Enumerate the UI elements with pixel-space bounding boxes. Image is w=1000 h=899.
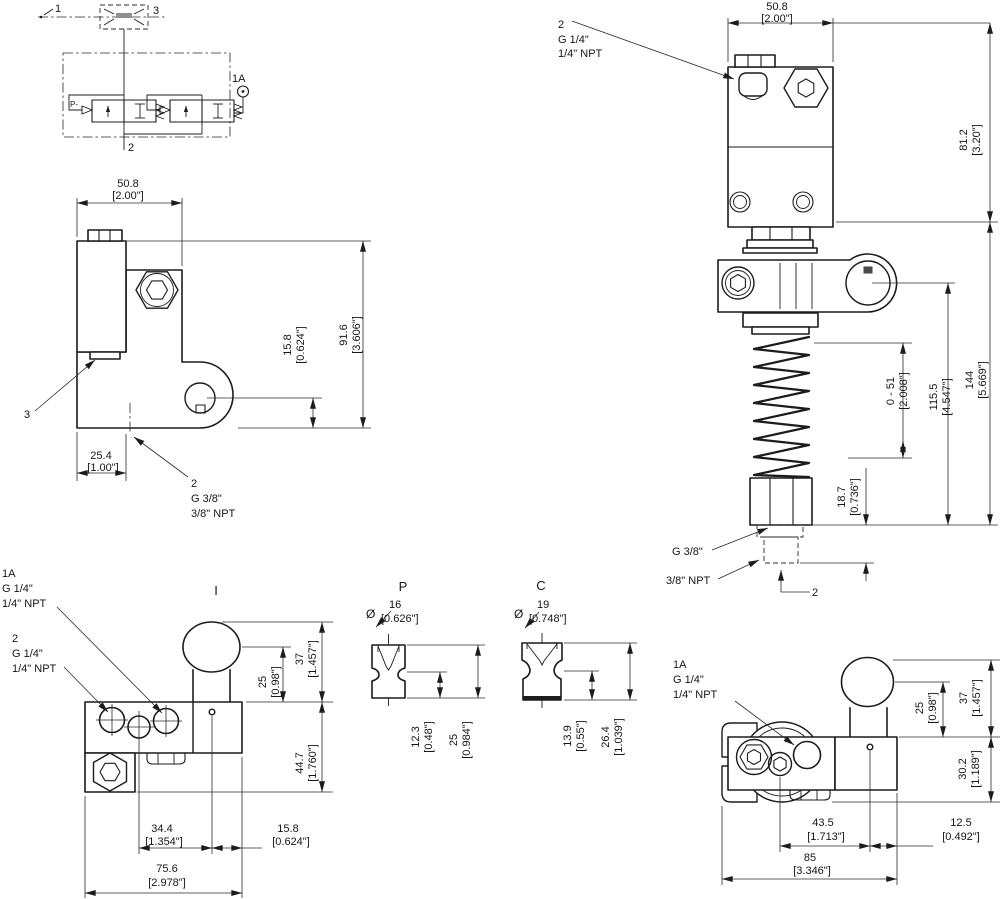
callout-text: 1/4" NPT [558,48,603,60]
dim-text: 50.8 [117,178,138,190]
callout-text: G 1/4" [673,674,704,686]
schematic-valve-left: P- [69,95,164,122]
dim-text: 37 [294,653,306,665]
dim-text: [0.492"] [942,831,980,843]
lever-bracket [835,737,897,790]
dia-callout: Ø 19 [0.748"] [514,599,567,628]
dim-text: [0.736"] [849,478,861,516]
dim-text: [2.00"] [112,190,143,202]
callout-port-2: 2 G 1/4" 1/4" NPT [558,19,734,79]
schematic-item-2: 2 [128,142,134,154]
side-port-block [85,753,135,792]
spring-symbol [234,104,242,119]
callout-port-1a: 1A G 1/4" 1/4" NPT [2,568,162,713]
dim-body-height: 81.2 [3.20"] [836,23,998,222]
dim-text: [2.008"] [898,372,910,410]
dim-total-height: 144 [5.669"] [964,222,990,525]
dim-pin-edge: 15.8 [0.624"] [212,757,310,898]
spring-seat [743,313,818,327]
dim-text: 15.8 [277,823,298,835]
dim-text: 144 [964,371,976,389]
detail-c: C Ø 19 [0.748"] 13.9 [0.55"] 26.4 [1.039… [514,578,637,756]
thread-stub-g [757,525,803,537]
dim-text: 85 [804,852,816,864]
dim-text: 30.2 [957,758,969,779]
dim-text: [0.624"] [272,836,310,848]
callout-text: G 3/8" [672,546,703,558]
seal-face [524,696,561,700]
dim-text: [5.669"] [977,361,989,399]
valve-drawing-canvas: 1 3 P- [0,0,1000,899]
dim-side-base: 25.4 [1.00"] [77,432,126,481]
diameter-symbol: Ø [514,607,523,621]
callout-text: G 1/4" [12,648,43,660]
dim-pin-edge: 12.5 [0.492"] [870,793,980,885]
dim-text: [1.760"] [307,744,319,782]
lever-knob [842,658,894,707]
dim-front-width: 50.8 [2.00"] [728,1,990,62]
callout-text: 3 [24,409,30,421]
valve-cartridge [77,241,126,352]
balloon-dot [40,16,43,19]
detail-p: P Ø 16 [0.626"] 12.3 [0.48"] 25 [0.984"] [366,579,485,759]
callout-text: 3/8" NPT [666,575,711,587]
dim-text: 25 [448,734,460,746]
dim-text: [3.606"] [351,316,363,354]
stem-flange [747,240,813,248]
pivot-keyway [864,267,873,274]
dia-callout: Ø 16 [0.626"] [366,599,419,627]
dim-text: 50.8 [766,1,787,13]
dim-text: 75.6 [156,863,177,875]
dim-text: 81.2 [958,129,970,150]
dim-text: [1.00"] [87,462,118,474]
dim-text: [3.20"] [971,124,983,155]
dim-text: [0.48"] [423,721,435,752]
dim-text: [1.354"] [145,836,183,848]
dim-text: 18.7 [836,486,848,507]
dim-text: 37 [958,692,970,704]
side-view: 50.8 [2.00"] 91.6 [3.606"] 15.8 [0.624"]… [24,178,371,520]
top-nut [88,230,122,241]
dim-text: [4.547"] [941,378,953,416]
callout-text: 1/4" NPT [2,598,47,610]
view-title: P [399,579,408,594]
side-view-2: 25 [0.98"] 37 [1.457"] 30.2 [1.189"] 43.… [673,658,1000,886]
dim-text: [0.624"] [295,326,307,364]
stem-nut [752,227,810,240]
dim-text: 91.6 [338,324,350,345]
dim-text: 34.4 [151,823,172,835]
dim-text: 43.5 [812,817,833,829]
dim-text: [0.55"] [575,720,587,751]
thread-stub-npt [764,537,798,563]
dim-text: [1.457"] [971,679,983,717]
lever-knob [183,622,240,672]
schematic-item-3: 3 [153,5,159,17]
dim-text: [0.984"] [461,721,473,759]
callout-port-2: 2 G 3/8" 3/8" NPT [134,437,236,520]
front-view: 50.8 [2.00"] 2 G 1/4" 1/4" NPT 81.2 [3.2… [558,1,998,599]
dim-text: [0.748"] [529,613,567,625]
callout-text: 2 [12,633,18,645]
dim-text: 15.8 [282,334,294,355]
dim-text: [1.039"] [613,718,625,756]
dim-text: 115.5 [928,384,940,411]
dim-text: 0 - 51 [885,377,897,405]
hydraulic-schematic: 1 3 P- [38,3,249,154]
dim-text: 25 [257,676,269,688]
dim-text: [2.00"] [761,13,792,25]
pilot-arrow [160,106,170,114]
dim-p-waist: 12.3 [0.48"] [407,672,447,753]
schematic-item-1: 1 [55,3,61,15]
callout-text: 1/4" NPT [673,689,718,701]
breather-bar [116,13,132,18]
dim-knob-center: 25 [0.98"] [895,682,950,737]
plunger-p [372,645,405,698]
dim-text: 16 [389,599,401,611]
valve-body-top [85,702,242,753]
cartridge-step [90,352,120,359]
dim-text: [0.98"] [927,692,939,723]
pilot-arrow [82,106,92,114]
callout-text: 2 [812,587,818,599]
dim-text: 25 [914,702,926,714]
engineering-drawing-sheet: 1 3 P- [0,0,1000,899]
callout-text: 1A [673,659,687,671]
callout-text: G 1/4" [558,34,589,46]
dim-text: 12.3 [410,726,422,747]
diameter-symbol: Ø [366,607,375,621]
plunger-c [522,643,562,700]
dim-text: 26.4 [600,726,612,747]
coil-spring [754,337,809,477]
dim-text: [3.346"] [793,865,831,877]
callout-text: G 3/8" [191,493,222,505]
top-nut [735,55,775,67]
callout-text: 1A [2,568,16,580]
dim-text: 12.5 [950,817,971,829]
dim-text: 44.7 [294,752,306,773]
pilot-label: P- [70,100,78,109]
dim-knob-top: 37 [1.457"] [893,660,1000,737]
callout-text: 1/4" NPT [12,663,57,675]
callout-port-2: 2 G 1/4" 1/4" NPT [12,633,108,712]
view-title: C [536,578,545,593]
schematic-item-1a: 1A [232,73,246,85]
dim-overall-width: 85 [3.346"] [722,806,897,885]
dim-text: [1.713"] [807,831,845,843]
adjuster-hex [750,478,812,525]
dim-text: [0.626"] [381,613,419,625]
dim-text: [1.189"] [970,750,982,788]
dim-adjust-range: 0 - 51 [2.008"] [814,343,912,458]
dim-text: 13.9 [562,725,574,746]
dim-c-waist: 13.9 [0.55"] [562,671,599,752]
dim-text: 25.4 [90,450,111,462]
dim-text: 19 [537,599,549,611]
spring-plate [752,327,809,334]
stem-nut-tabs [147,753,185,764]
callout-text: 3/8" NPT [191,508,236,520]
dim-knob-center: 25 [0.98"] [242,647,333,702]
dim-text: [1.457"] [307,640,319,678]
top-view: I 25 [0.98"] [2,568,333,898]
dim-text: [0.98"] [270,666,282,697]
lever-arm [718,254,897,312]
callout-text: G 1/4" [2,583,33,595]
callout-text: 2 [191,478,197,490]
dim-text: [2.978"] [148,877,186,889]
callout-bottom-thread: G 3/8" 3/8" NPT 2 [666,528,818,599]
callout-text: 2 [558,19,564,31]
view-title: I [214,583,218,598]
stem-washer [743,248,817,253]
